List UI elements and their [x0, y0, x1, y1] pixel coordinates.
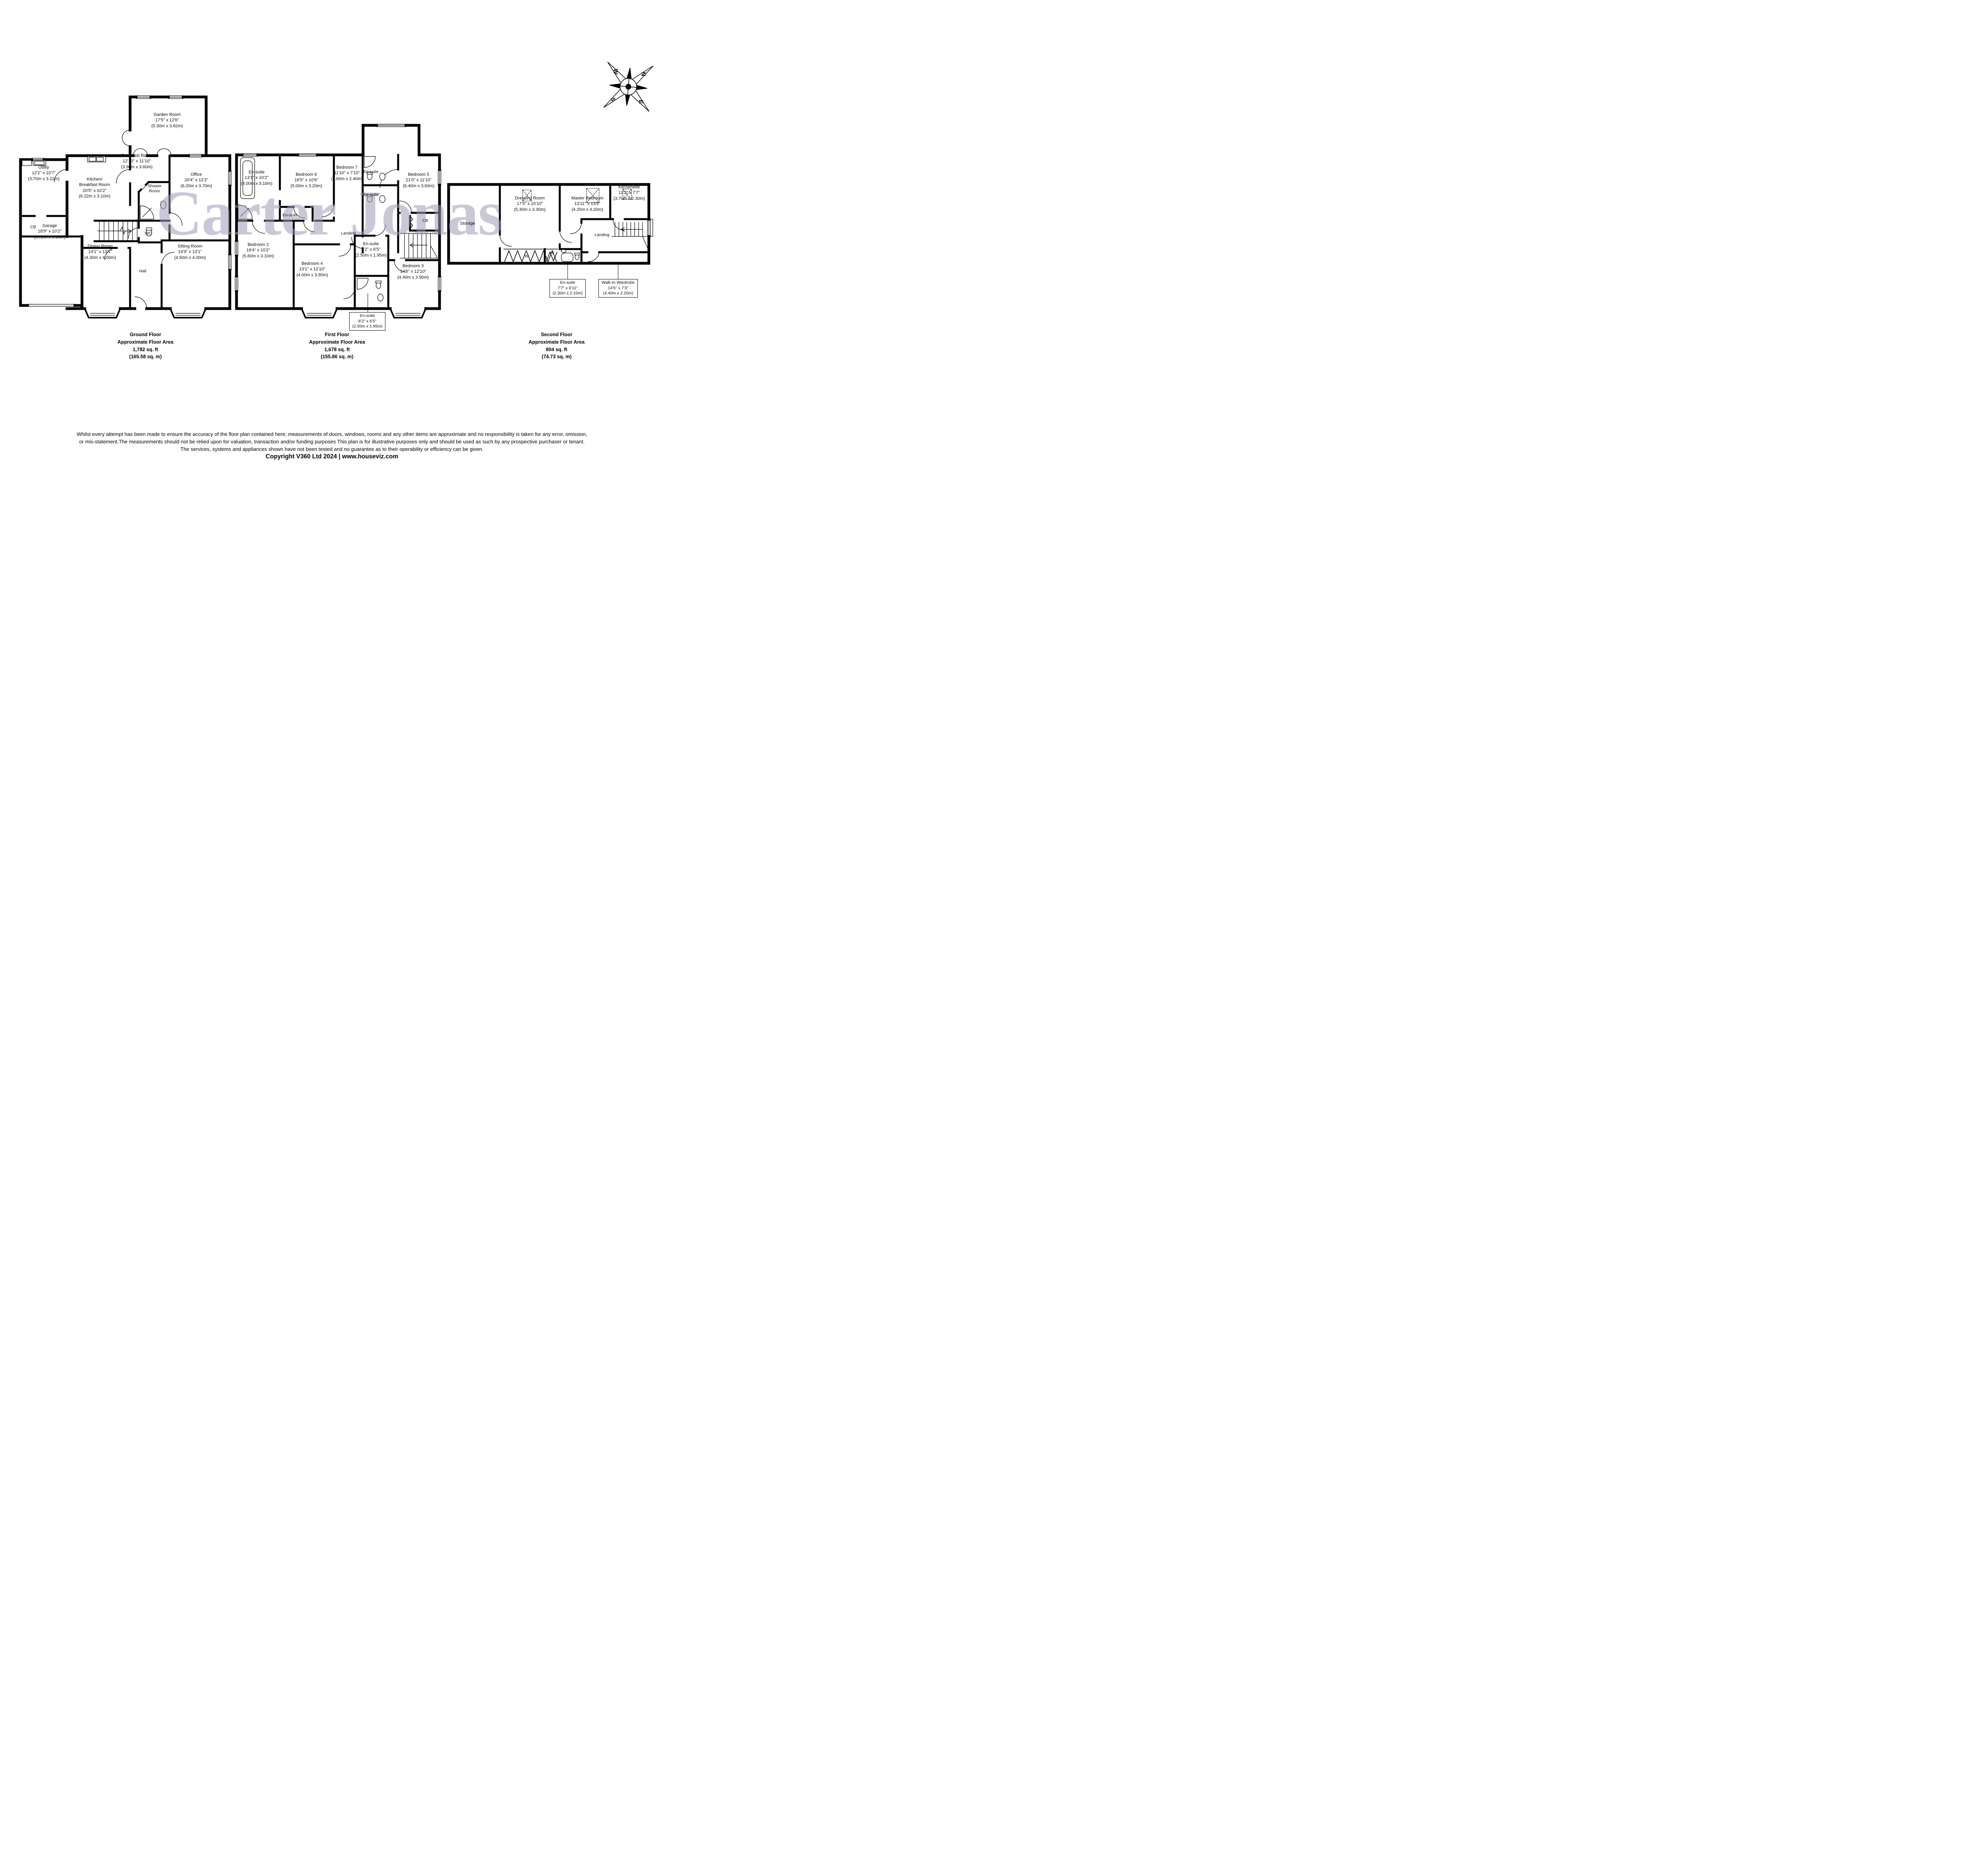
label-cb: CB: [423, 218, 428, 223]
label-line: (3.60m x 2.40m): [326, 176, 367, 182]
room-label-en-suite: En-suite8'2" x 6'5"(2.50m x 1.95m): [353, 241, 389, 258]
label-line: (5.00m x 3.20m): [285, 183, 328, 189]
second-floor-title: Second Floor: [529, 331, 585, 339]
label-line: En-suite: [353, 241, 389, 247]
label-line: (4.00m x 3.10m): [237, 181, 277, 186]
room-label-utility: Utility12'2" x 10'7"(3.70m x 3.22m): [22, 165, 66, 182]
label-shower-room: Shower Room: [144, 184, 165, 194]
label-line: 14'9" x 13'1": [168, 249, 212, 255]
label-line: (2.50m x 1.95m): [352, 324, 382, 329]
label-line: (6.22m x 3.10m): [73, 194, 116, 199]
floorplan-page: N E S W Carter Jonas Ground Floor Approx…: [0, 0, 664, 469]
label-line: 21'0" x 11'10": [397, 177, 441, 183]
first-floor-subtitle: Approximate Floor Area: [309, 339, 365, 346]
label-line: (6.20m x 3.70m): [175, 183, 218, 189]
label-line: Master Bedroom: [563, 195, 612, 201]
copyright-line: Copyright V360 Ltd 2024 | www.houseviz.c…: [0, 453, 664, 460]
ground-floor-area-ft: 1,782 sq. ft: [117, 346, 173, 354]
label-landing: Landing: [594, 233, 609, 238]
disclaimer-line-1: Whilst every attempt has been made to en…: [0, 431, 664, 437]
label-line: (2.30m x 2.10m): [553, 291, 583, 296]
label-line: Kitchen/: [73, 177, 116, 182]
label-line: Dressing Room: [506, 195, 553, 201]
room-label-bedroom-2: Bedroom 218'4" x 10'2"(5.60m x 3.10m): [236, 242, 280, 259]
label-line: Walk-In Wardrobe: [602, 280, 635, 286]
boxed-label-walk-in-wardrobe: Walk-In Wardrobe14'5" x 7'3"(4.40m x 2.2…: [598, 279, 638, 298]
label-line: (4.30m x 4.00m): [78, 255, 122, 261]
room-label-bedroom-3: Bedroom 314'5" x 12'10"(4.40m x 3.90m): [391, 263, 435, 280]
room-label-bedroom-7: Bedroom 711'10" x 7'10"(3.60m x 2.40m): [326, 165, 367, 182]
label-line: Office: [175, 172, 218, 177]
room-label-en-suite: En-suite13'1" x 10'2"(4.00m x 3.10m): [237, 169, 277, 186]
label-line: 13'1" x 10'2": [237, 175, 277, 181]
label-wc: WC: [145, 231, 152, 236]
ground-floor-area-m: (165.58 sq. m): [117, 353, 173, 361]
label-line: Dining Room: [78, 244, 122, 249]
label-line: (5.60m x 3.10m): [236, 253, 280, 259]
room-label-sitting-room: Sitting Room14'9" x 13'1"(4.50m x 4.00m): [168, 244, 212, 261]
label-line: (5.30m x 3.30m): [506, 207, 553, 212]
label-line: 18'4" x 10'2": [236, 248, 280, 253]
room-label-bedroom-4: Bedroom 413'1" x 12'10"(4.00m x 3.90m): [290, 261, 334, 278]
label-line: En-suite: [237, 169, 277, 175]
label-w: W: [550, 251, 554, 256]
disclaimer-line-3: The services, systems and appliances sho…: [0, 446, 664, 452]
ground-floor-title: Ground Floor: [117, 331, 173, 339]
label-line: (4.50m x 4.00m): [168, 255, 212, 261]
label-line: Breakfast Room: [73, 182, 116, 188]
second-floor-area-ft: 804 sq. ft: [529, 346, 585, 354]
first-floor-title: First Floor: [309, 331, 365, 339]
room-label-master-bedroom: Master Bedroom13'11" x 13'9"(4.25m x 4.2…: [563, 195, 612, 212]
boxed-label-en-suite: En-suite7'7" x 6'11"(2.30m x 2.10m): [550, 279, 586, 298]
label-en-suite: En-suite: [363, 192, 379, 197]
room-label-storage: Storage: [452, 221, 483, 226]
label-line: Bedroom 3: [391, 263, 435, 269]
first-floor-area-ft: 1,678 sq. ft: [309, 346, 365, 354]
label-line: Bedroom 5: [397, 172, 441, 177]
label-line: 8'2" x 6'5": [353, 247, 389, 252]
label-line: Bedroom 4: [290, 261, 334, 266]
label-line: (3.70m x 2.30m): [609, 196, 650, 201]
label-line: 20'5" x 10'2": [73, 188, 116, 194]
label-line: Kitchenette: [609, 184, 650, 190]
room-label-garden-room: Garden Room17'5" x 12'6"(5.30m x 3.82m): [142, 112, 193, 129]
label-line: 12'2" x 7'7": [609, 190, 650, 195]
room-label-kitchenette: Kitchenette12'2" x 7'7"(3.70m x 2.30m): [609, 184, 650, 201]
second-floor-area-label: Second Floor Approximate Floor Area 804 …: [529, 331, 585, 361]
second-floor-subtitle: Approximate Floor Area: [529, 339, 585, 346]
label-line: 14'1" x 13'1": [78, 249, 122, 255]
labels-layer: Ground Floor Approximate Floor Area 1,78…: [0, 0, 664, 469]
room-label-bedroom-6: Bedroom 616'5" x 10'6"(5.00m x 3.20m): [285, 172, 328, 189]
label-line: (5.30m x 3.82m): [142, 123, 193, 129]
room-label-breakfast-room: Breakfast Room12'10" x 11'10"(3.90m x 3.…: [113, 153, 160, 170]
label-hall: Hall: [139, 269, 146, 274]
room-label-dressing-room: Dressing Room17'5" x 10'10"(5.30m x 3.30…: [506, 195, 553, 212]
label-line: 12'10" x 11'10": [113, 158, 160, 164]
room-label-dining-room: Dining Room14'1" x 13'1"(4.30m x 4.00m): [78, 244, 122, 261]
label-line: 13'1" x 12'10": [290, 266, 334, 272]
label-line: (5.72m x 3.10m): [28, 234, 72, 240]
label-line: Sitting Room: [168, 244, 212, 249]
label-line: Breakfast Room: [113, 153, 160, 158]
label-landing: Landing: [341, 231, 356, 236]
label-line: 14'5" x 7'3": [602, 286, 635, 291]
label-line: 7'7" x 6'11": [553, 286, 583, 291]
second-floor-area-m: (74.73 sq. m): [529, 353, 585, 361]
label-line: 17'5" x 12'6": [142, 117, 193, 123]
disclaimer-line-2: or mis-statement.The measurements should…: [0, 439, 664, 445]
label-line: Utility: [22, 165, 66, 170]
label-line: 14'5" x 12'10": [391, 269, 435, 274]
label-line: (4.40m x 2.20m): [602, 291, 635, 296]
ground-floor-subtitle: Approximate Floor Area: [117, 339, 173, 346]
label-line: 16'5" x 10'6": [285, 177, 328, 183]
label-line: (6.40m x 3.60m): [397, 183, 441, 189]
label-line: En-suite: [553, 280, 583, 286]
ground-floor-area-label: Ground Floor Approximate Floor Area 1,78…: [117, 331, 173, 361]
label-line: Storage: [452, 221, 483, 226]
label-line: (3.70m x 3.22m): [22, 176, 66, 182]
label-line: En-suite: [352, 313, 382, 319]
label-line: Bedroom 2: [236, 242, 280, 248]
label-line: 17'5" x 10'10": [506, 201, 553, 207]
label-line: (4.40m x 3.90m): [391, 275, 435, 280]
label-cb: CB: [30, 225, 36, 230]
label-w: W: [525, 254, 529, 259]
first-floor-area-label: First Floor Approximate Floor Area 1,678…: [309, 331, 365, 361]
label-line: (3.90m x 3.60m): [113, 164, 160, 170]
label-line: 11'10" x 7'10": [326, 170, 367, 176]
label-line: Bedroom 7: [326, 165, 367, 170]
label-en-suite: En-suite: [363, 169, 379, 175]
room-label-bedroom-5: Bedroom 521'0" x 11'10"(6.40m x 3.60m): [397, 172, 441, 189]
room-label-kitchen-breakfast-room: Kitchen/Breakfast Room20'5" x 10'2"(6.22…: [73, 177, 116, 199]
label-line: 20'4" x 12'2": [175, 177, 218, 183]
label-line: 8'2" x 6'5": [352, 319, 382, 324]
label-line: (4.00m x 3.90m): [290, 272, 334, 278]
label-line: Garden Room: [142, 112, 193, 117]
label-line: 12'2" x 10'7": [22, 170, 66, 176]
label-line: (4.25m x 4.20m): [563, 207, 612, 212]
label-line: Bedroom 6: [285, 172, 328, 177]
label-en-suite: En-suite: [283, 213, 298, 218]
label-line: 13'11" x 13'9": [563, 201, 612, 207]
boxed-label-en-suite: En-suite8'2" x 6'5"(2.50m x 1.95m): [349, 312, 386, 331]
label-line: (2.50m x 1.95m): [353, 253, 389, 258]
first-floor-area-m: (155.86 sq. m): [309, 353, 365, 361]
room-label-office: Office20'4" x 12'2"(6.20m x 3.70m): [175, 172, 218, 189]
